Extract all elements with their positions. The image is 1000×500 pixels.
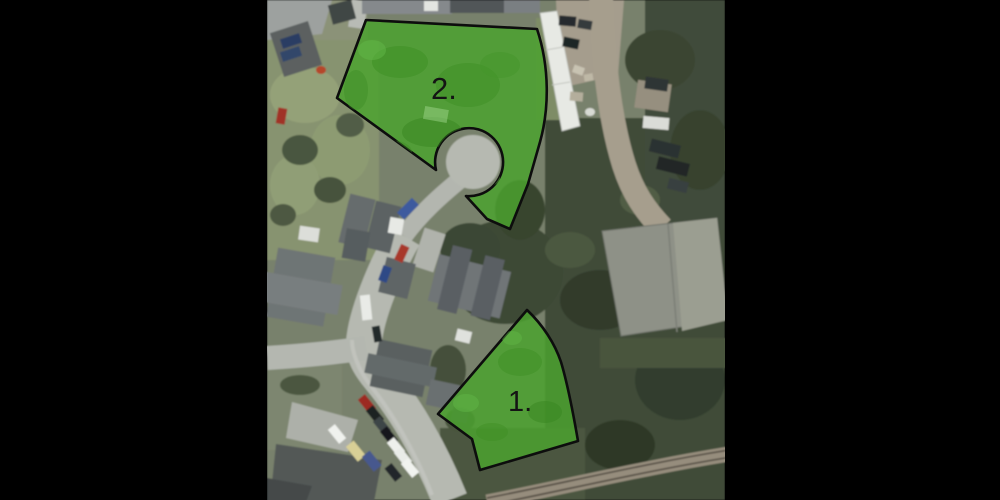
- cul-de-sac: [446, 135, 500, 189]
- warehouse-building: [602, 218, 728, 336]
- parcel-2-label: 2.: [431, 71, 457, 106]
- screenshot-stage: 2. 1.: [0, 0, 1000, 500]
- parcel-1-label: 1.: [508, 386, 532, 418]
- aerial-map: 2. 1.: [0, 0, 1000, 500]
